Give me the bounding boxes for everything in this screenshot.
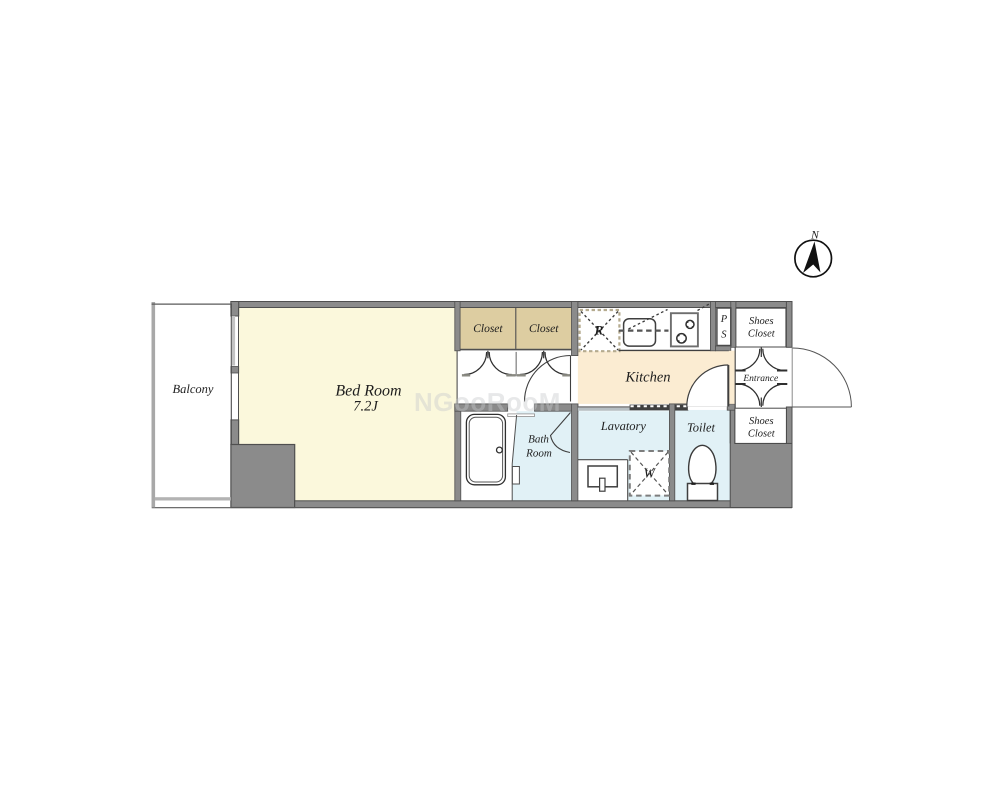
svg-text:Balcony: Balcony (173, 382, 214, 396)
svg-text:Entrance: Entrance (742, 374, 778, 384)
svg-text:NGooRooM: NGooRooM (414, 387, 561, 417)
svg-text:Room: Room (525, 448, 552, 460)
svg-text:Closet: Closet (748, 429, 776, 440)
svg-text:Shoes: Shoes (749, 416, 774, 427)
svg-text:Shoes: Shoes (749, 316, 774, 327)
svg-text:Bath: Bath (528, 434, 549, 446)
svg-text:Bed Room: Bed Room (335, 383, 401, 400)
svg-text:P: P (720, 314, 728, 325)
svg-text:Closet: Closet (529, 323, 559, 335)
svg-text:R: R (594, 323, 604, 338)
svg-text:Toilet: Toilet (687, 421, 716, 435)
svg-text:Closet: Closet (748, 329, 776, 340)
svg-text:7.2J: 7.2J (353, 399, 378, 415)
svg-text:N: N (810, 230, 820, 242)
svg-text:Lavatory: Lavatory (600, 419, 647, 433)
svg-text:W: W (644, 466, 657, 481)
svg-text:S: S (721, 330, 727, 341)
svg-text:Kitchen: Kitchen (624, 370, 670, 386)
svg-text:Closet: Closet (473, 323, 503, 335)
